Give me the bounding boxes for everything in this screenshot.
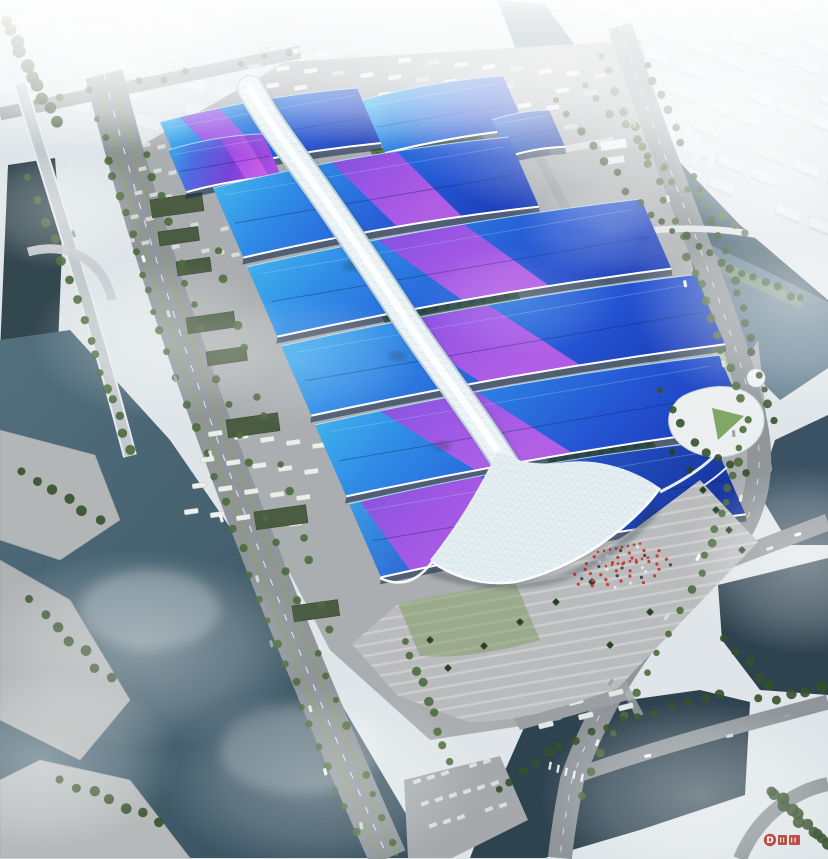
fog-patch (180, 295, 420, 425)
crowd-dot (636, 545, 639, 548)
watermark-glyph-stroke (795, 838, 796, 843)
crowd-dot (657, 549, 660, 552)
crowd-dot (580, 577, 583, 580)
crowd-dot (620, 566, 623, 569)
crowd-dot (643, 554, 646, 557)
watermark-glyph-stroke (780, 838, 781, 843)
crowd-dot (593, 555, 596, 558)
screenshot-root: D (0, 0, 828, 859)
watermark-glyph (778, 835, 787, 845)
crowd-dot (619, 579, 622, 582)
vehicle (732, 430, 736, 437)
crowd-dot (669, 563, 672, 566)
aerial-rendering: D (0, 0, 828, 859)
watermark-letter: D (766, 836, 773, 846)
watermark-glyph-stroke (783, 838, 784, 843)
crowd-dot (604, 578, 607, 581)
crowd-dot (644, 570, 647, 573)
crowd-dot (591, 579, 594, 582)
crowd-dot (605, 568, 608, 571)
crowd-dot (655, 563, 658, 566)
crowd-dot (615, 569, 618, 572)
crowd-dot (628, 574, 631, 577)
crowd-dot (616, 556, 619, 559)
crowd-dot (597, 565, 600, 568)
crowd-dot (629, 569, 632, 572)
crowd-dot (665, 558, 668, 561)
fog-patch (420, 245, 620, 355)
crowd-dot (591, 584, 594, 587)
crowd-dot (642, 549, 645, 552)
crowd-dot (642, 581, 645, 584)
crowd-dot (629, 581, 632, 584)
crowd-dot (640, 576, 643, 579)
watermark-glyph-stroke (791, 838, 792, 843)
crowd-dot (630, 556, 633, 559)
crowd-dot (577, 583, 580, 586)
watermark: D (764, 834, 800, 846)
crowd-dot (589, 572, 592, 575)
crowd-dot (647, 560, 650, 563)
crowd-dot (655, 554, 658, 557)
crowd-dot (641, 566, 644, 569)
crowd-dot (628, 551, 631, 554)
crowd-dot (653, 574, 656, 577)
crowd-dot (614, 586, 617, 589)
crowd-dot (599, 573, 602, 576)
crowd-dot (657, 568, 660, 571)
crowd-dot (616, 574, 619, 577)
crowd-dot (606, 583, 609, 586)
